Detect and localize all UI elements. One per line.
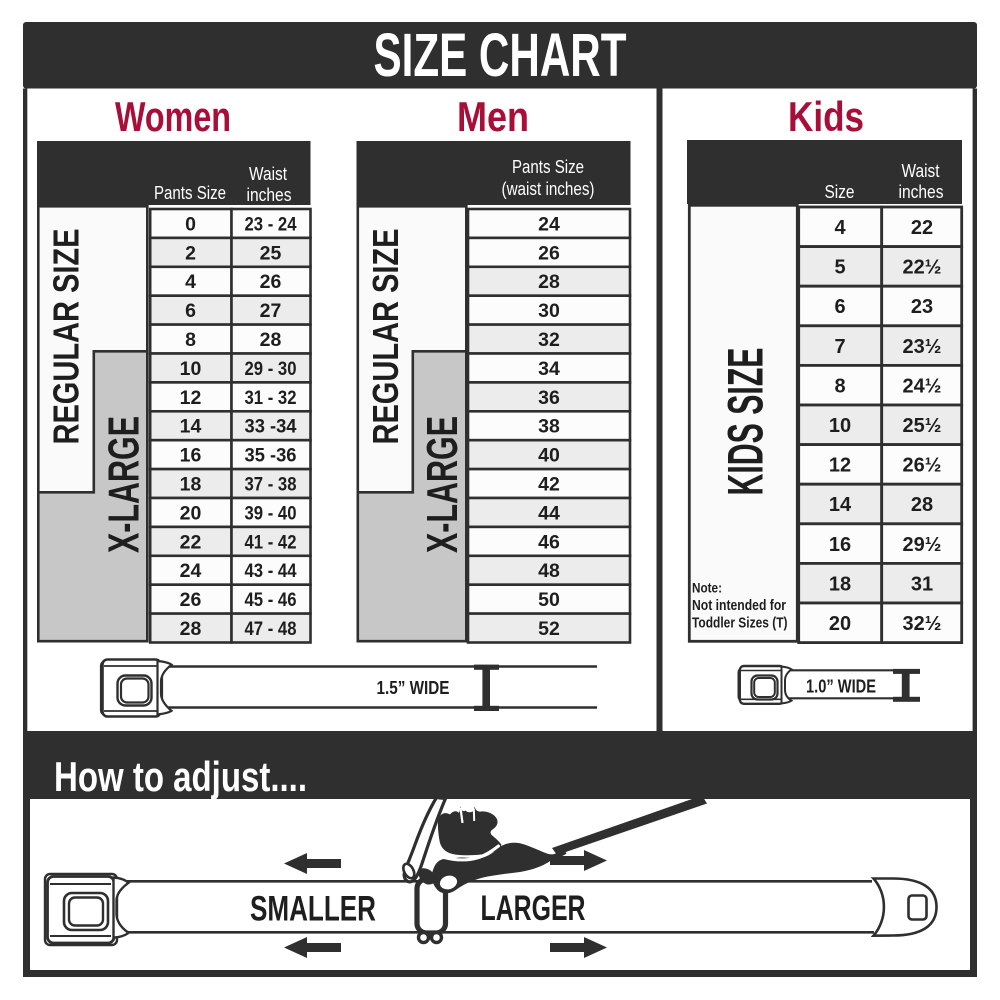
- svg-text:24: 24: [180, 560, 202, 582]
- svg-text:Men: Men: [457, 93, 529, 140]
- svg-text:16: 16: [180, 445, 202, 467]
- svg-text:39 - 40: 39 - 40: [245, 502, 297, 524]
- svg-text:Pants Size: Pants Size: [154, 183, 226, 203]
- svg-text:Waist: Waist: [902, 161, 940, 181]
- svg-text:32: 32: [538, 329, 560, 351]
- svg-text:X-LARGE: X-LARGE: [100, 416, 149, 553]
- svg-text:24: 24: [538, 213, 560, 235]
- svg-text:8: 8: [834, 375, 845, 397]
- svg-text:6: 6: [185, 300, 196, 322]
- svg-text:KIDS SIZE: KIDS SIZE: [718, 348, 774, 496]
- svg-text:12: 12: [180, 387, 202, 409]
- svg-text:10: 10: [829, 415, 851, 437]
- svg-text:6: 6: [834, 296, 845, 318]
- svg-text:Note:: Note:: [692, 581, 722, 596]
- svg-text:23½: 23½: [903, 336, 942, 358]
- svg-text:SMALLER: SMALLER: [250, 890, 376, 929]
- svg-text:22½: 22½: [903, 257, 942, 279]
- svg-text:1.0” WIDE: 1.0” WIDE: [806, 676, 876, 697]
- svg-text:5: 5: [834, 257, 845, 279]
- svg-text:26: 26: [538, 242, 560, 264]
- svg-text:REGULAR SIZE: REGULAR SIZE: [46, 229, 87, 445]
- svg-text:36: 36: [538, 387, 560, 409]
- svg-text:28: 28: [260, 329, 282, 351]
- svg-text:27: 27: [260, 300, 282, 322]
- svg-text:45 - 46: 45 - 46: [245, 589, 297, 611]
- svg-text:20: 20: [180, 502, 202, 524]
- svg-text:23: 23: [911, 296, 933, 318]
- svg-text:30: 30: [538, 300, 560, 322]
- svg-text:35 -36: 35 -36: [245, 445, 297, 467]
- svg-text:7: 7: [834, 336, 845, 358]
- svg-text:22: 22: [911, 217, 933, 239]
- svg-text:X-LARGE: X-LARGE: [418, 416, 467, 553]
- svg-text:28: 28: [180, 618, 202, 640]
- svg-text:10: 10: [180, 358, 202, 380]
- svg-text:52: 52: [538, 618, 560, 640]
- svg-text:42: 42: [538, 474, 560, 496]
- svg-text:25½: 25½: [903, 415, 942, 437]
- svg-text:8: 8: [185, 329, 196, 351]
- svg-text:Kids: Kids: [788, 93, 864, 140]
- svg-text:14: 14: [180, 416, 202, 438]
- svg-text:How to adjust....: How to adjust....: [54, 753, 307, 800]
- svg-text:20: 20: [829, 613, 851, 635]
- svg-text:29½: 29½: [903, 534, 942, 556]
- svg-text:Waist: Waist: [249, 164, 287, 184]
- svg-text:inches: inches: [899, 182, 944, 202]
- svg-text:23 - 24: 23 - 24: [245, 213, 297, 235]
- svg-text:29 - 30: 29 - 30: [245, 358, 297, 380]
- svg-text:24½: 24½: [903, 375, 942, 397]
- svg-text:16: 16: [829, 534, 851, 556]
- svg-text:Toddler Sizes (T): Toddler Sizes (T): [692, 616, 788, 632]
- svg-text:38: 38: [538, 416, 560, 438]
- svg-text:34: 34: [538, 358, 560, 380]
- svg-text:31 - 32: 31 - 32: [245, 387, 297, 409]
- svg-text:Pants Size: Pants Size: [512, 157, 584, 177]
- svg-text:47 - 48: 47 - 48: [245, 618, 297, 640]
- svg-text:37 - 38: 37 - 38: [245, 474, 297, 496]
- svg-text:26½: 26½: [903, 455, 942, 477]
- svg-text:0: 0: [185, 213, 196, 235]
- svg-text:Size: Size: [825, 182, 855, 202]
- svg-text:4: 4: [185, 271, 196, 293]
- svg-text:inches: inches: [247, 185, 292, 205]
- svg-text:18: 18: [829, 573, 851, 595]
- svg-text:LARGER: LARGER: [481, 889, 586, 928]
- svg-text:4: 4: [834, 217, 846, 239]
- svg-text:32½: 32½: [903, 613, 942, 635]
- svg-text:50: 50: [538, 589, 560, 611]
- svg-text:18: 18: [180, 474, 202, 496]
- svg-text:Not intended for: Not intended for: [692, 598, 786, 614]
- svg-text:28: 28: [911, 494, 933, 516]
- svg-text:(waist inches): (waist inches): [502, 179, 595, 199]
- svg-text:26: 26: [180, 589, 202, 611]
- svg-text:2: 2: [185, 242, 196, 264]
- svg-text:SIZE CHART: SIZE CHART: [374, 21, 627, 90]
- svg-text:1.5” WIDE: 1.5” WIDE: [377, 677, 450, 698]
- svg-text:12: 12: [829, 455, 851, 477]
- svg-text:25: 25: [260, 242, 282, 264]
- svg-text:31: 31: [911, 573, 933, 595]
- svg-text:40: 40: [538, 445, 560, 467]
- svg-text:26: 26: [260, 271, 282, 293]
- svg-text:33 -34: 33 -34: [245, 416, 297, 438]
- svg-text:28: 28: [538, 271, 560, 293]
- svg-text:14: 14: [829, 494, 852, 516]
- svg-text:41 - 42: 41 - 42: [245, 531, 297, 553]
- svg-text:43 - 44: 43 - 44: [245, 560, 297, 582]
- svg-text:Women: Women: [115, 93, 231, 140]
- svg-text:REGULAR SIZE: REGULAR SIZE: [365, 229, 406, 445]
- svg-text:44: 44: [538, 502, 560, 524]
- svg-text:22: 22: [180, 531, 202, 553]
- svg-text:46: 46: [538, 531, 560, 553]
- svg-text:48: 48: [538, 560, 560, 582]
